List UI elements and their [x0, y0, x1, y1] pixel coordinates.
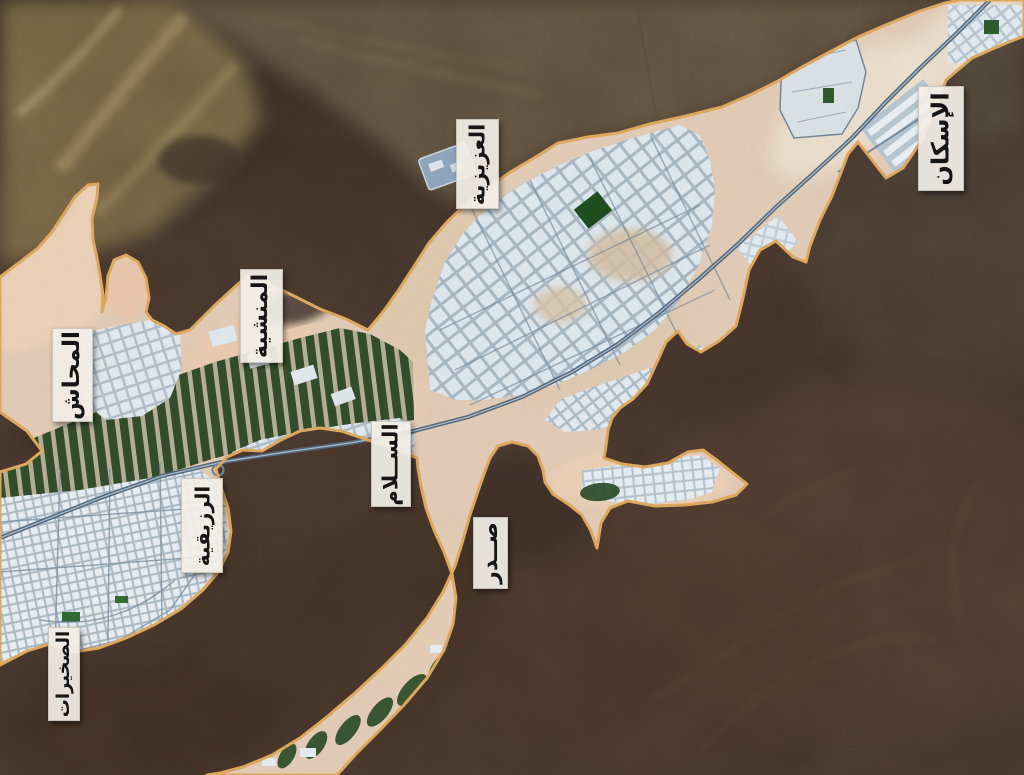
district-label-aziziyah: العزيزية	[456, 119, 499, 209]
satellite-map	[0, 0, 1024, 775]
district-label-text: الصخيرات	[55, 631, 73, 717]
district-label-text: الإسكان	[929, 92, 953, 185]
district-label-mahash: المحاش	[52, 328, 93, 422]
district-label-salam: الســلام	[371, 421, 411, 507]
district-label-ruzaiqiyah: الرزيقية	[181, 478, 223, 573]
district-label-sadr: صــدر	[473, 517, 508, 589]
district-label-text: المنشية	[251, 274, 273, 358]
district-label-text: العزيزية	[467, 123, 488, 205]
district-label-manshiyah: المنشية	[240, 269, 283, 363]
satellite-map-figure: الإسكان العزيزية المنشية المحاش الســلام…	[0, 0, 1024, 775]
district-label-text: صــدر	[480, 522, 502, 584]
district-label-text: المحاش	[61, 331, 84, 420]
fine-grain	[0, 0, 1024, 775]
district-label-iskan: الإسكان	[918, 86, 964, 191]
district-label-sukhairat: الصخيرات	[48, 627, 80, 721]
district-label-text: الرزيقية	[192, 485, 212, 566]
district-label-text: الســلام	[381, 423, 402, 505]
